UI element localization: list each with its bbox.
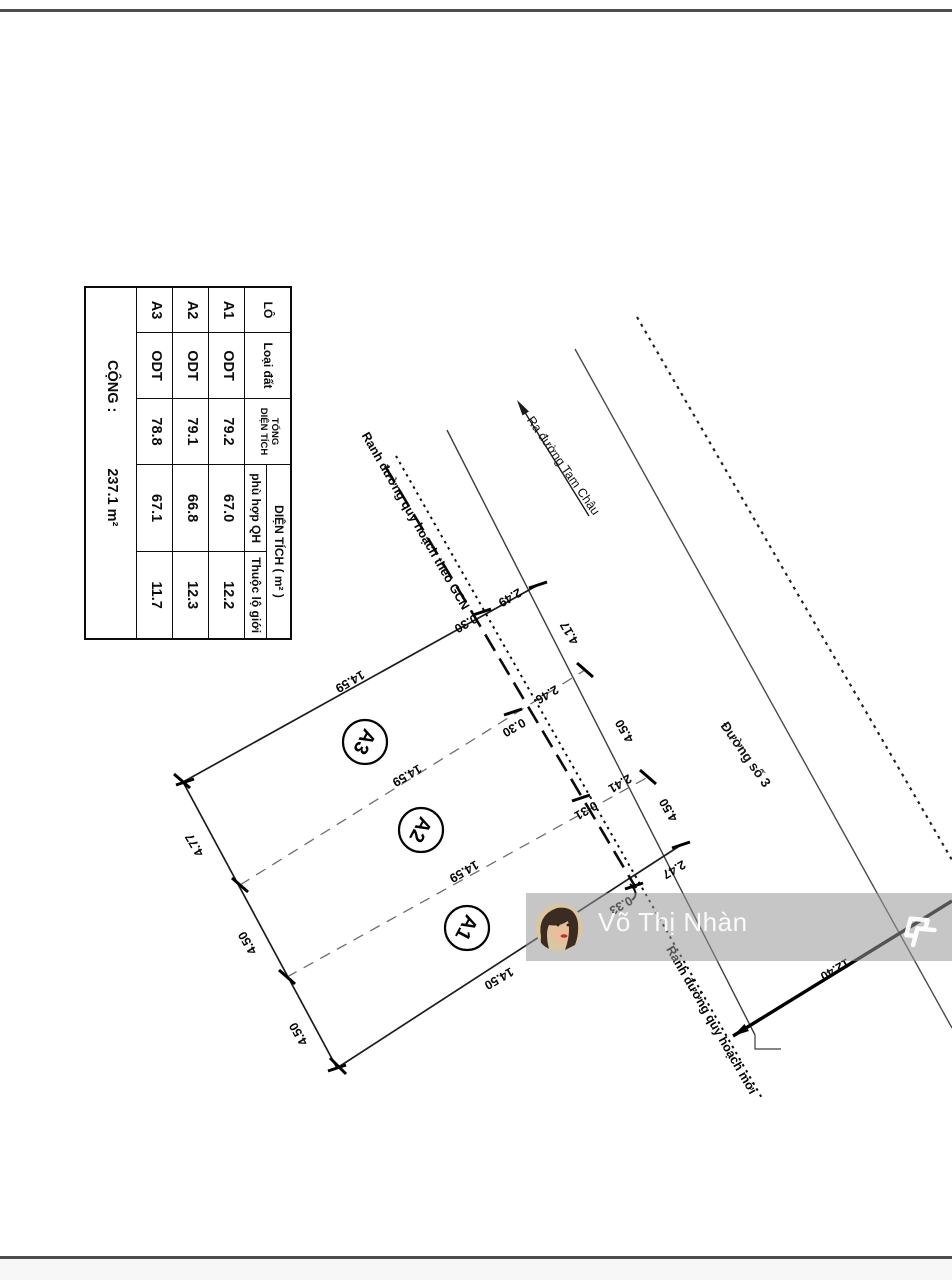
dim-right-a3: 4.17 xyxy=(557,619,581,647)
dim-cut-a2a1: 2.41 xyxy=(606,771,634,795)
plan-sheet: A3 A2 A1 14.59 14.59 14.59 14.50 4.77 4.… xyxy=(0,0,952,1280)
dim-offset-a2a1: 0.31 xyxy=(572,798,600,822)
area-summary-table: LÔ Loại đất TỔNG DIỆN TÍCH DIỆN TÍCH ( m… xyxy=(84,286,292,640)
dim-cut-bottom: 2.47 xyxy=(660,857,688,881)
cell-loai: ODT xyxy=(173,333,209,399)
tong-line2: DIỆN TÍCH xyxy=(257,399,268,464)
dim-cut-a3a2: 2.46 xyxy=(533,682,561,706)
plot-left-edge xyxy=(183,782,337,1068)
lot-label-a1: A1 xyxy=(450,911,481,944)
total-value: 237.1 m² xyxy=(104,468,119,526)
lot-row-a3: A3 ODT 78.8 67.1 11.7 xyxy=(137,287,173,639)
dim-bottom-edge: 14.50 xyxy=(482,965,516,993)
cell-tong: 79.1 xyxy=(173,399,209,465)
dim-divider-a2a1: 14.59 xyxy=(447,858,481,886)
cell-lo-gioi: 12.2 xyxy=(209,552,245,639)
gcn-boundary-label: Ranh đường quy hoạch theo GCN xyxy=(359,430,472,613)
sheet-margin xyxy=(0,1259,952,1280)
cell-lo-gioi: 12.3 xyxy=(173,552,209,639)
total-row: CỘNG : 237.1 m² xyxy=(85,287,137,639)
cell-lo-gioi: 11.7 xyxy=(137,552,173,639)
col-header-tong-dien-tich: TỔNG DIỆN TÍCH xyxy=(245,399,291,465)
col-header-thuoc-lo-gioi: Thuộc lộ giới xyxy=(245,552,267,639)
brand-logo-icon xyxy=(890,901,945,956)
cell-phu-hop: 67.0 xyxy=(209,465,245,552)
dim-right-a2: 4.50 xyxy=(612,717,636,745)
road-name-label: Đường số 3 xyxy=(718,719,774,791)
tam-chau-arrowhead-icon xyxy=(517,400,529,416)
total-label: CỘNG : xyxy=(104,360,119,412)
cell-lo: A3 xyxy=(137,287,173,333)
cell-loai: ODT xyxy=(209,333,245,399)
dim-offset-a3a2: 0.30 xyxy=(500,715,528,739)
cell-tong: 78.8 xyxy=(137,399,173,465)
cell-phu-hop: 66.8 xyxy=(173,465,209,552)
dim-left-a3: 4.77 xyxy=(182,831,206,859)
dim-top-edge: 14.59 xyxy=(333,668,367,696)
avatar-image xyxy=(535,903,583,951)
extension-elbow xyxy=(755,1035,781,1049)
cell-loai: ODT xyxy=(137,333,173,399)
cell-tong: 79.2 xyxy=(209,399,245,465)
to-road-label: Ra đường Tam Châu xyxy=(524,414,603,518)
new-boundary-label: Ranh đường quy hoạch mới xyxy=(663,944,759,1097)
cell-lo: A2 xyxy=(173,287,209,333)
dim-divider-a3a2: 14.59 xyxy=(390,762,424,790)
lot-label-a2: A2 xyxy=(404,813,435,846)
lot-label-a3: A3 xyxy=(348,725,379,758)
watermark-avatar xyxy=(535,903,583,951)
cell-lo: A1 xyxy=(209,287,245,333)
col-header-lo: LÔ xyxy=(245,287,291,333)
dim-offset-top: 0.30 xyxy=(452,611,480,635)
col-header-phu-hop-qh: phù hợp QH xyxy=(245,465,267,552)
dim-left-a2: 4.50 xyxy=(235,929,259,957)
lot-row-a2: A2 ODT 79.1 66.8 12.3 xyxy=(173,287,209,639)
watermark-bar: Võ Thị Nhàn xyxy=(526,893,952,961)
cell-phu-hop: 67.1 xyxy=(137,465,173,552)
road-far-dotted-line xyxy=(637,317,952,860)
watermark-name: Võ Thị Nhàn xyxy=(598,907,748,938)
col-header-loai-dat: Loại đất xyxy=(245,333,291,399)
col-header-dien-tich-group: DIỆN TÍCH ( m² ) xyxy=(267,465,291,640)
site-plan-svg: A3 A2 A1 14.59 14.59 14.59 14.50 4.77 4.… xyxy=(0,0,952,1280)
tong-line1: TỔNG xyxy=(268,399,279,464)
lot-row-a1: A1 ODT 79.2 67.0 12.2 xyxy=(209,287,245,639)
dim-right-a1: 4.50 xyxy=(656,796,680,824)
dim-left-a1: 4.50 xyxy=(286,1020,310,1048)
area-summary-table-wrap: LÔ Loại đất TỔNG DIỆN TÍCH DIỆN TÍCH ( m… xyxy=(86,286,292,640)
